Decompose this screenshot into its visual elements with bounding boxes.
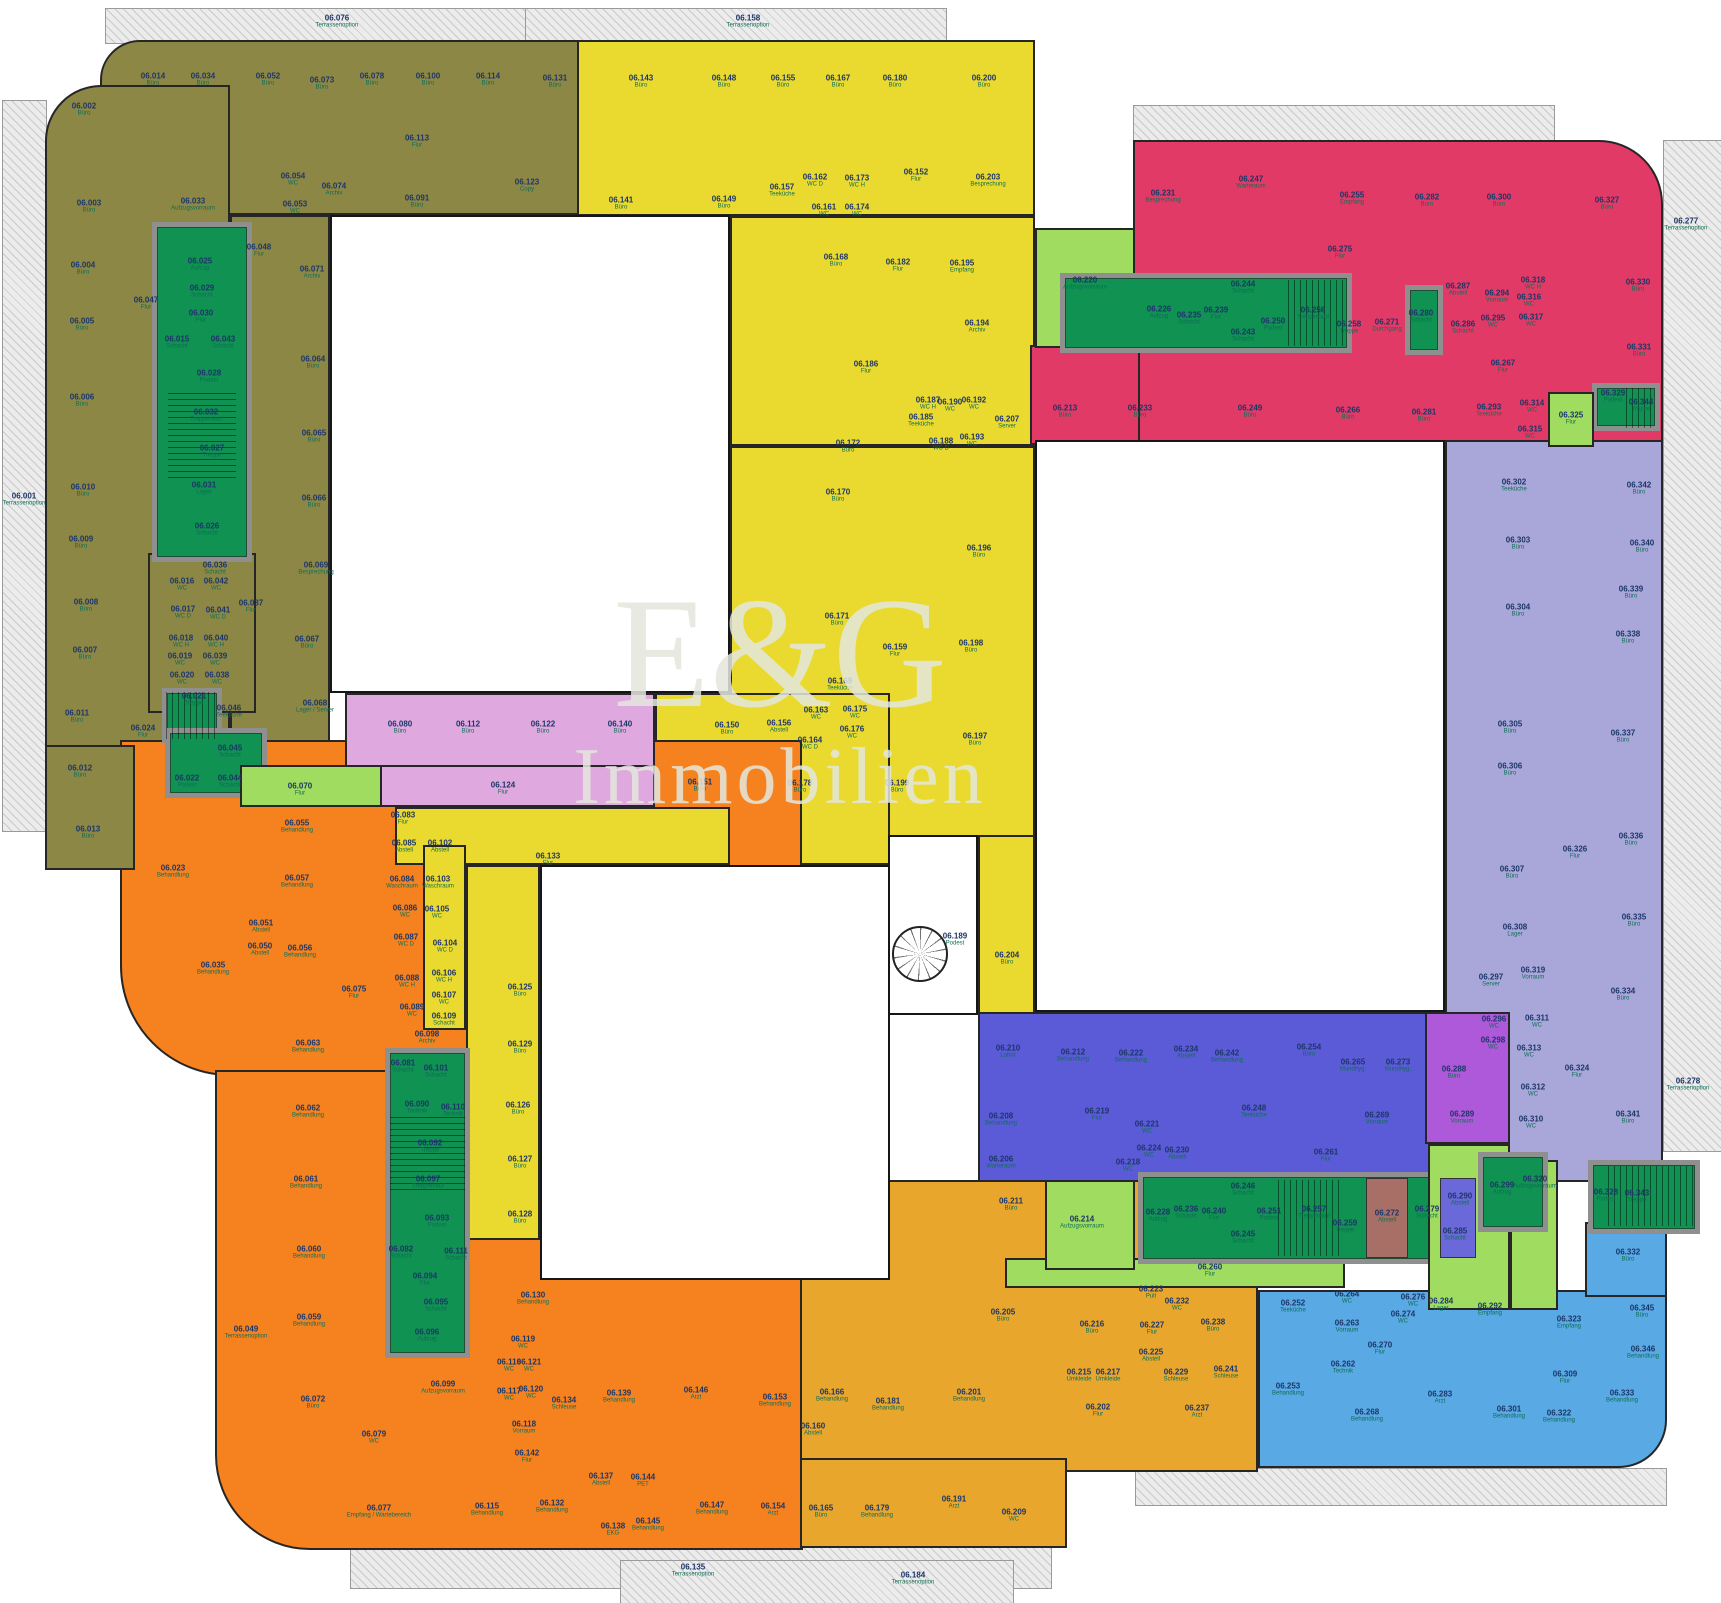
- terrace-pink-top: [1133, 105, 1555, 142]
- connector-flur-070: [240, 765, 382, 807]
- terrace-bottom-2: [620, 1560, 1014, 1603]
- zone-plum-rooms: [345, 693, 655, 767]
- terrace-right: [1663, 140, 1721, 1152]
- zone-lightblue: [1258, 1290, 1667, 1468]
- courtyard-east: [1035, 440, 1445, 1012]
- stair-treads-021: [166, 692, 218, 739]
- floor-plan: 06.002Büro06.014Büro06.034Büro06.052Büro…: [0, 0, 1721, 1603]
- room-272-block: [1366, 1178, 1408, 1258]
- courtyard-southwest: [540, 865, 890, 1280]
- stair-treads-se: [1278, 1180, 1342, 1256]
- zone-violet: [1425, 1012, 1510, 1144]
- terrace-bottom-right: [1135, 1468, 1667, 1506]
- connector-214: [1045, 1180, 1135, 1270]
- zone-yellow-top: [577, 40, 1035, 216]
- terrace-left: [2, 100, 47, 832]
- zone-yellow-mid: [730, 216, 1035, 446]
- terrace-top-left: [105, 8, 527, 44]
- zone-yellow-204: [978, 835, 1035, 1014]
- stair-treads-east: [1608, 1166, 1694, 1226]
- zone-amber-south: [800, 1458, 1067, 1548]
- shaft-280: [1405, 285, 1443, 355]
- terrace-top-right: [525, 8, 947, 44]
- spiral-stair: [892, 926, 948, 982]
- zone-yellow-wccol: [423, 845, 466, 1030]
- connector-flur-325: [1548, 392, 1594, 447]
- stair-treads-nw: [168, 390, 236, 478]
- zone-blue: [978, 1012, 1430, 1184]
- zone-pink-west: [1030, 345, 1140, 445]
- zone-yellow-col: [466, 865, 540, 1240]
- stair-treads-sw: [390, 1115, 465, 1190]
- courtyard-center-gap: [888, 835, 978, 1015]
- stair-treads-ne: [1288, 280, 1344, 346]
- lift-299: [1478, 1152, 1548, 1232]
- shaft-290-block: [1440, 1178, 1476, 1258]
- stair-treads-329: [1626, 388, 1656, 428]
- zone-olive-sw: [45, 745, 135, 870]
- courtyard-northwest: [330, 215, 730, 693]
- stair-core-southwest: [385, 1048, 470, 1358]
